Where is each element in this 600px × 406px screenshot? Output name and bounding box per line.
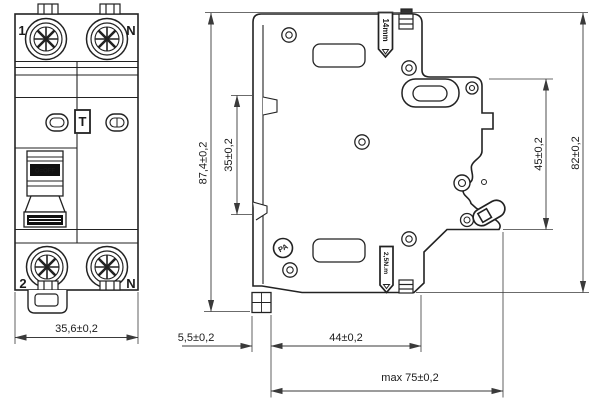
terminal-slots-top — [399, 9, 413, 29]
switch-handle — [24, 196, 66, 227]
indicator-window-right — [106, 114, 128, 131]
top-clamp-tabs — [38, 4, 120, 14]
side-view: 14mm 2,5N.m PA — [252, 9, 508, 313]
rivet-screw — [466, 82, 478, 94]
dim-front-offset-label: 5,5±0,2 — [178, 332, 215, 344]
housing-screw-icon — [355, 135, 369, 149]
dim-total-height-label: 87,4±0,2 — [198, 142, 210, 185]
dim-overall-depth-label: 82±0,2 — [570, 136, 582, 170]
dim-rail-recess: 35±0,2 — [223, 96, 252, 215]
terminal-label-2: 2 — [19, 276, 26, 291]
dim-mounting-depth-label: 44±0,2 — [329, 332, 363, 344]
terminal-label-n-top: N — [126, 23, 135, 38]
breaker-dimensional-drawing: 1 N 2 N T — [0, 0, 600, 406]
test-button: T — [75, 110, 90, 133]
din-clip-tab — [28, 290, 67, 313]
dim-max-depth-label: max 75±0,2 — [381, 372, 438, 384]
dim-front-offset: 5,5±0,2 — [178, 332, 252, 346]
dim-front-width-label: 35,6±0,2 — [55, 323, 98, 335]
torque-label: 2,5N.m — [382, 252, 389, 274]
rocker-switch: O=OFF — [24, 151, 66, 227]
terminal-label-n-bottom: N — [126, 276, 135, 291]
mounting-foot — [252, 293, 271, 313]
technical-drawing-page: 1 N 2 N T — [0, 0, 600, 406]
terminal-slots-bottom — [399, 280, 413, 293]
switch-state-label: O=OFF — [35, 169, 56, 175]
handle-window — [402, 79, 459, 107]
indicator-window-left — [46, 114, 68, 131]
housing-screw-icon — [282, 28, 296, 42]
test-button-label: T — [79, 114, 87, 129]
strip-length-tag: 14mm — [379, 13, 393, 58]
latch-pivot-screw — [461, 214, 474, 227]
dim-upper-depth-label: 45±0,2 — [533, 137, 545, 171]
dim-rail-recess-label: 35±0,2 — [223, 138, 235, 172]
strip-length-label: 14mm — [381, 18, 390, 41]
torque-tag: 2,5N.m — [380, 247, 393, 293]
material-marking: PA — [274, 239, 293, 258]
housing-screw-icon — [283, 263, 297, 277]
dim-mounting-depth: 44±0,2 — [271, 332, 421, 346]
terminal-label-1: 1 — [18, 23, 25, 38]
front-view: 1 N 2 N T — [15, 4, 138, 313]
housing-screw-icon — [402, 61, 416, 75]
housing-screw-icon — [402, 232, 416, 246]
dim-max-depth: max 75±0,2 — [271, 372, 503, 391]
